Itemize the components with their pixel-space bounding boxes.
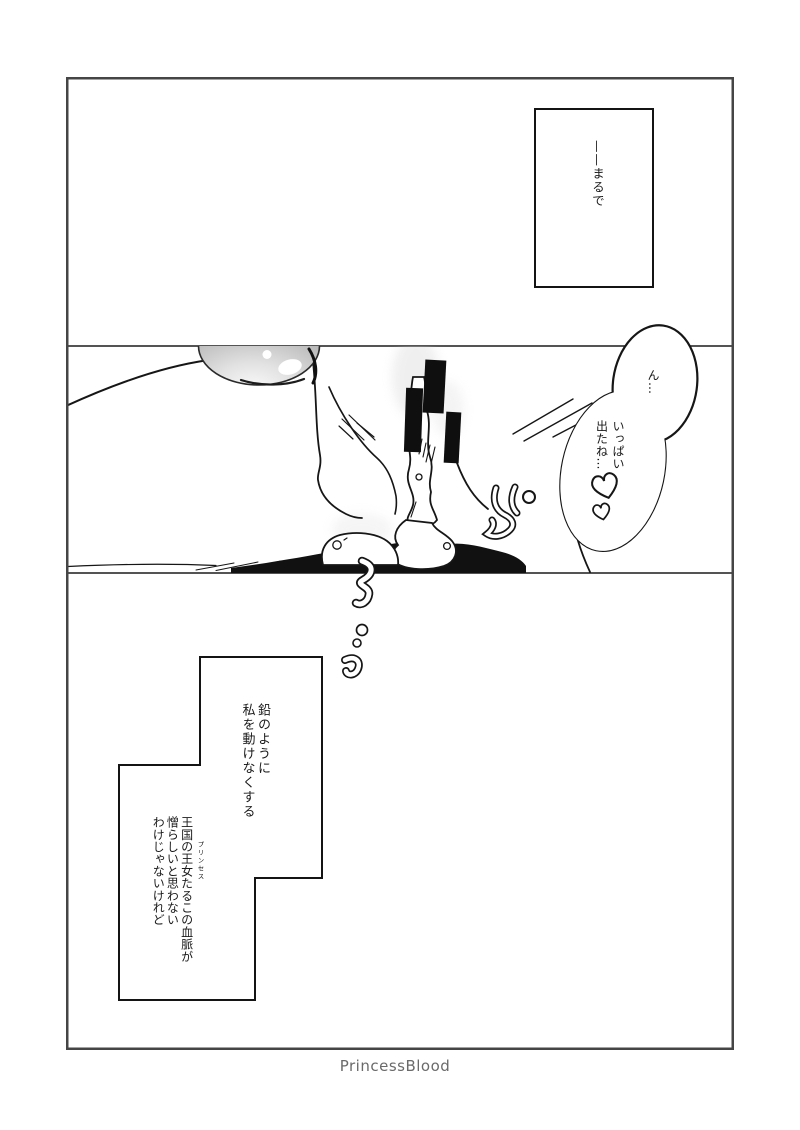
splash-doodle [487, 487, 535, 536]
manga-page: ——まるで ん… いっぱい 出たね… 鉛のように 私を動けなくする 王国の王女た… [0, 0, 800, 1130]
bubble-moan-text: ん… [645, 369, 662, 395]
floor-shading [68, 540, 526, 573]
middle-panel-illustration [66, 307, 614, 574]
body-curve [66, 360, 209, 406]
footer-credit: PrincessBlood [0, 1057, 790, 1075]
caption-text: ——まるで [588, 140, 607, 208]
drip-drop [353, 639, 361, 647]
body-curve [329, 387, 396, 514]
orb-highlight [263, 350, 272, 359]
bubble-dialogue-col1: いっぱい [610, 420, 627, 470]
body-curve [312, 353, 362, 518]
drip-drop [357, 625, 368, 636]
bubble-dialogue: いっぱい 出たね… [593, 420, 626, 470]
glass-orb [199, 307, 320, 385]
drip-squiggle [345, 561, 371, 675]
furigana-ruby: プリンセス [195, 841, 205, 881]
bubble-dialogue-col2: 出たね… [593, 420, 610, 470]
monologue-2-col1: 王国の王女たるこの血脈が [179, 816, 193, 962]
body-curve [457, 463, 488, 509]
monologue-box [119, 657, 322, 1000]
monologue-1: 鉛のように 私を動けなくする [239, 703, 270, 819]
monologue-2-col2: 憎らしいと思わない [165, 816, 179, 962]
monologue-1-col2: 私を動けなくする [239, 703, 255, 819]
monologue-1-col1: 鉛のように [255, 703, 271, 819]
monologue-2-col3: わけじゃないけれど [151, 816, 165, 962]
monologue-2: 王国の王女たるこの血脈が 憎らしいと思わない わけじゃないけれど [151, 816, 194, 962]
